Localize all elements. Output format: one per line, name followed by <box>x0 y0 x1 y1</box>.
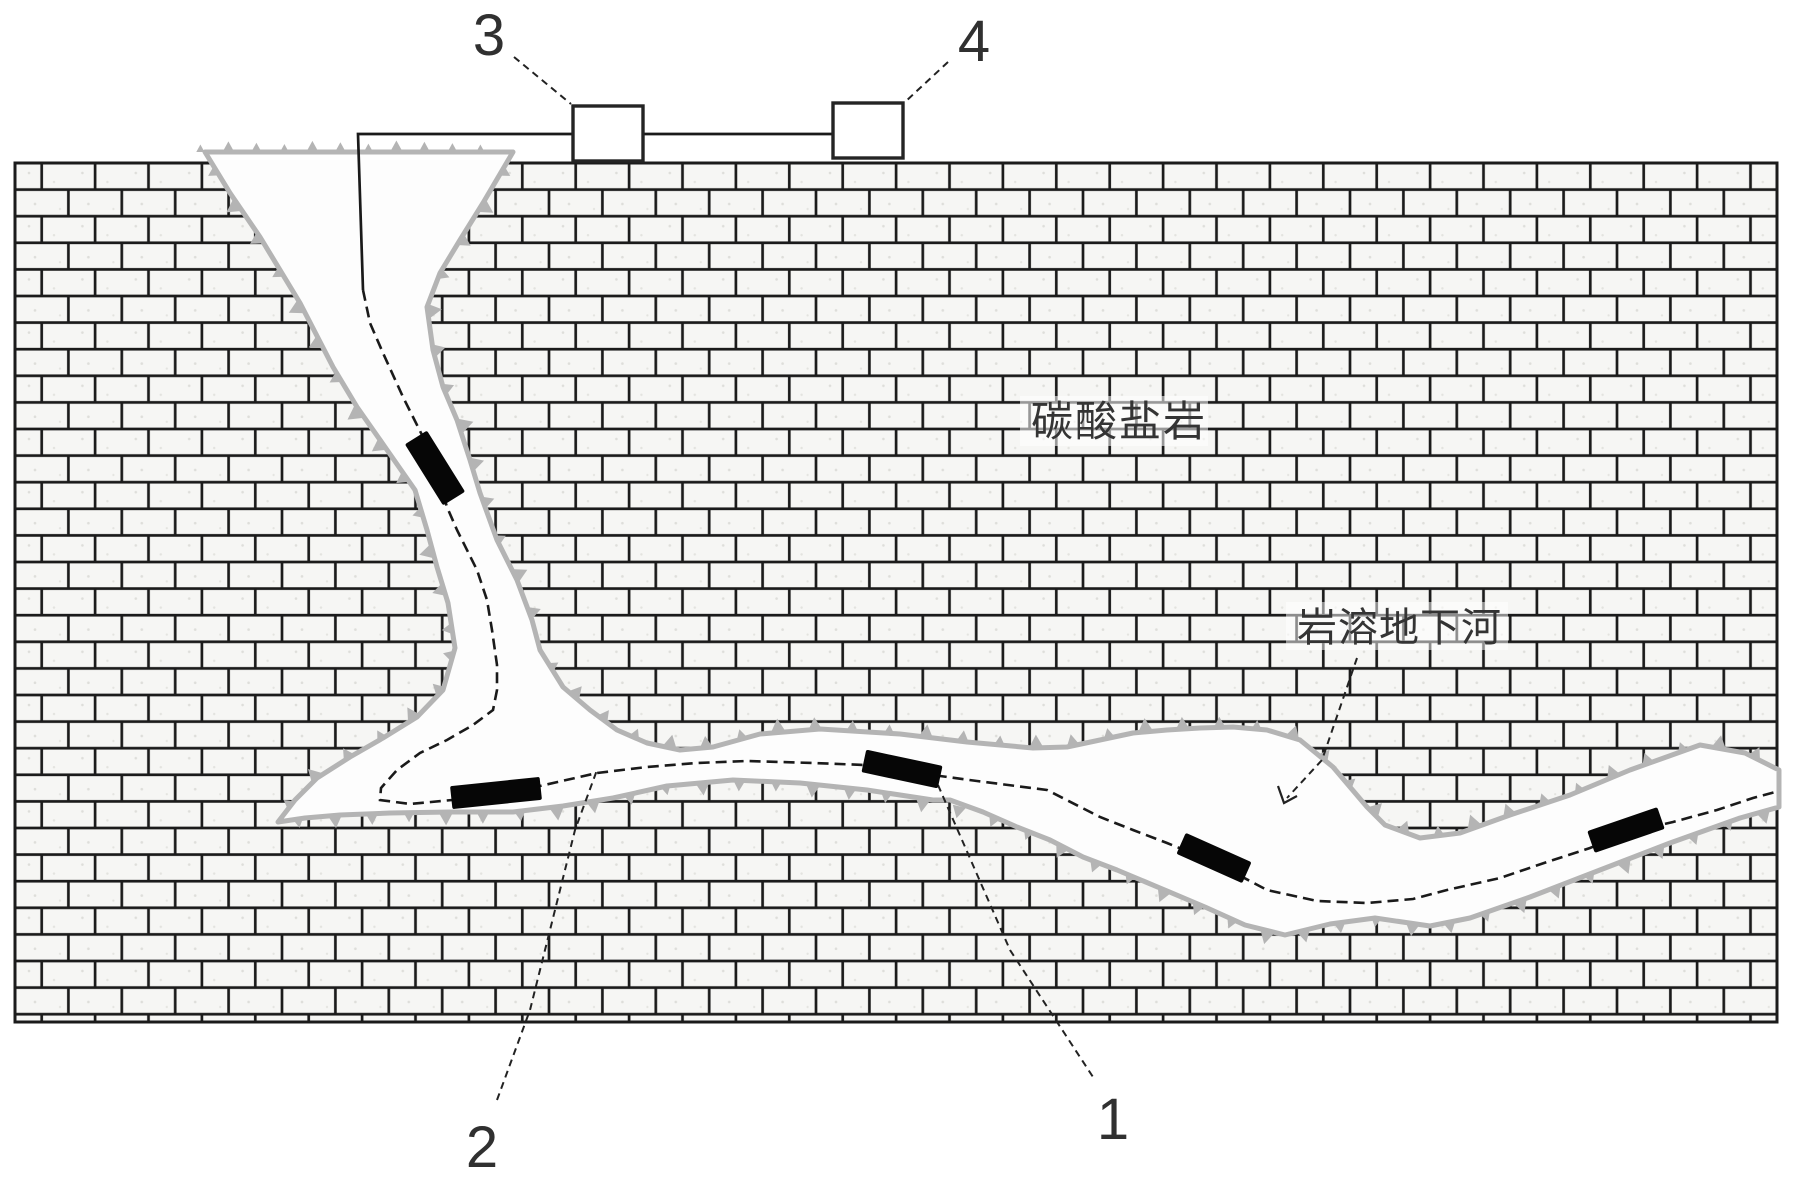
ref-label-3: 3 <box>473 3 505 68</box>
leader-ref-3 <box>514 57 571 104</box>
rock-type-label: 碳酸盐岩 <box>1031 398 1207 445</box>
figure-page: 碳酸盐岩 岩溶地下河 3 4 1 2 <box>0 0 1809 1179</box>
ref-label-2: 2 <box>466 1115 498 1179</box>
karst-underground-river-diagram: 碳酸盐岩 岩溶地下河 3 4 1 2 <box>0 0 1809 1179</box>
underground-river-label: 岩溶地下河 <box>1297 606 1502 650</box>
ref-label-4: 4 <box>958 9 990 74</box>
surface-instruments <box>573 103 903 161</box>
instrument-box-4 <box>833 103 903 158</box>
instrument-box-3 <box>573 106 643 161</box>
leader-ref-4 <box>905 62 948 102</box>
ref-label-1: 1 <box>1097 1087 1129 1152</box>
